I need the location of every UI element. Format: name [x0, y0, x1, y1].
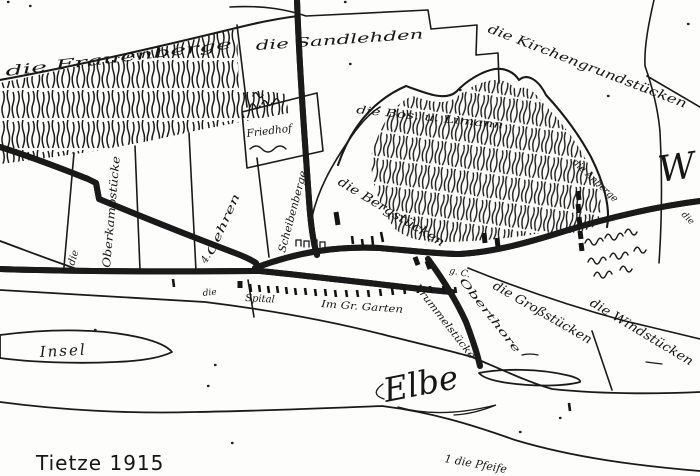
label-im-gr-garten: Im Gr. Garten — [320, 299, 404, 316]
label-windstuecken: die Windstücken — [587, 295, 696, 369]
label-sandlehden: die Sandlehden — [255, 27, 424, 54]
label-w-partial: W — [656, 145, 700, 191]
building-outlines — [296, 240, 325, 247]
strip-line-2 — [135, 146, 140, 270]
label-die-left: die — [66, 249, 81, 267]
shore-dashes — [522, 354, 662, 364]
label-pfeife: 1 die Pfeife — [443, 452, 508, 476]
label-insel: Insel — [38, 341, 87, 361]
map-caption: Tietze 1915 — [35, 451, 164, 475]
windstuecken-boundary — [592, 331, 612, 390]
label-elbe: Elbe — [379, 357, 461, 410]
label-spital: Spital — [245, 293, 275, 306]
label-oberkampstuecke: Oberkampstücke — [100, 155, 123, 268]
label-die-right: die — [679, 210, 696, 227]
sandbank-spit — [479, 370, 580, 386]
map-canvas: die Frauenberge die Sandlehden die Kirch… — [0, 0, 700, 476]
river-elbe — [0, 241, 700, 471]
strip-line-4 — [257, 158, 269, 257]
friedhof-squiggle — [250, 146, 286, 152]
right-boundary — [645, 0, 662, 263]
label-friedhof: Friedhof — [245, 122, 295, 140]
historical-map: die Frauenberge die Sandlehden die Kirch… — [0, 0, 700, 476]
strip-line-3 — [189, 133, 196, 271]
scrub-squiggles — [585, 229, 646, 278]
label-die-row: die — [202, 288, 217, 299]
